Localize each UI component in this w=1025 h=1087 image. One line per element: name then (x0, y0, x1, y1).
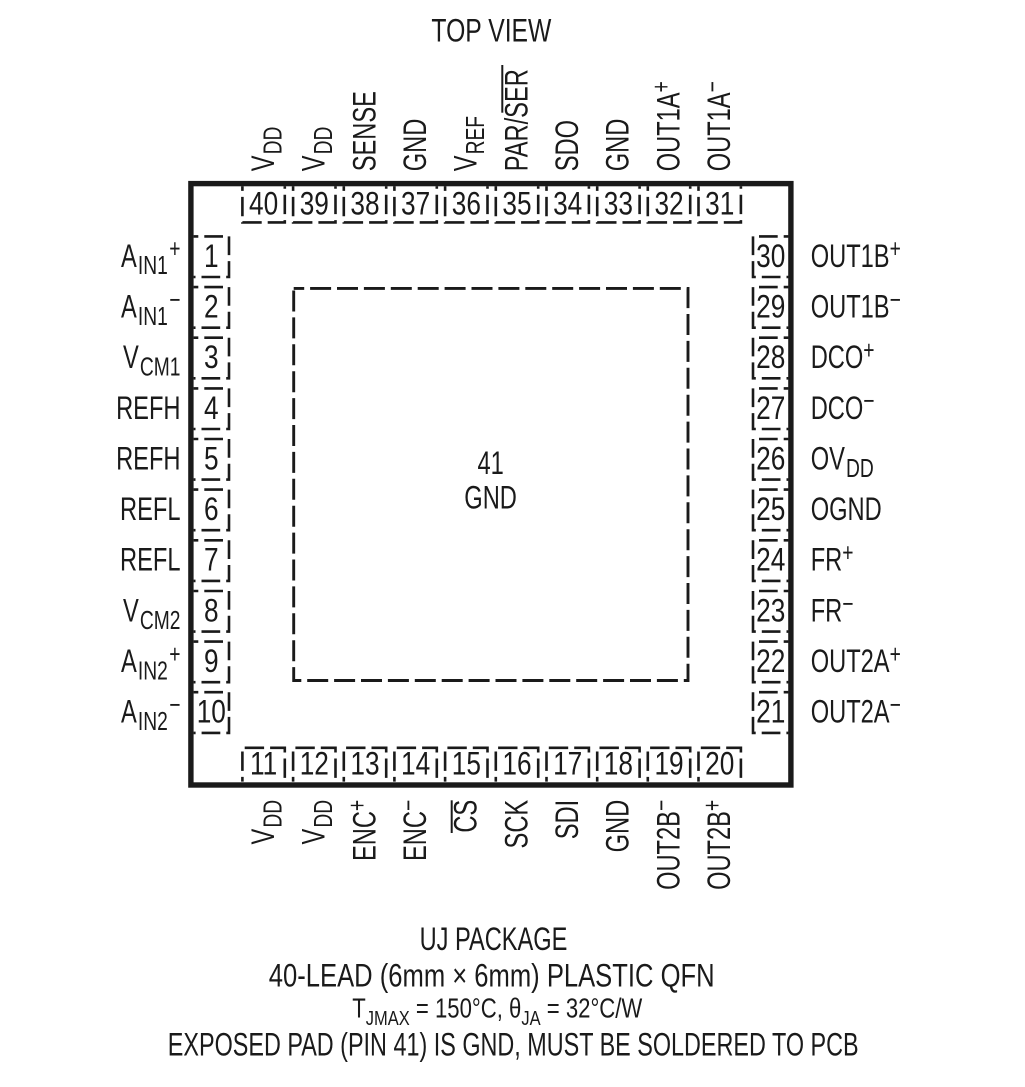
svg-text:29: 29 (756, 290, 785, 325)
svg-text:OUT1B+: OUT1B+ (811, 234, 901, 274)
svg-text:19: 19 (654, 747, 683, 782)
svg-text:38: 38 (350, 187, 379, 222)
svg-text:2: 2 (204, 290, 219, 325)
svg-text:21: 21 (756, 695, 785, 730)
svg-text:35: 35 (502, 187, 531, 222)
svg-text:30: 30 (756, 239, 785, 274)
svg-text:39: 39 (300, 187, 329, 222)
svg-text:REFH: REFH (116, 441, 180, 476)
svg-text:PAR/SER: PAR/SER (499, 69, 534, 171)
svg-text:28: 28 (756, 341, 785, 376)
svg-text:REFL: REFL (120, 542, 180, 577)
svg-text:13: 13 (350, 747, 379, 782)
svg-text:32: 32 (654, 187, 683, 222)
svg-text:GND: GND (398, 119, 433, 172)
svg-text:17: 17 (553, 747, 582, 782)
svg-text:CS: CS (448, 800, 483, 833)
svg-text:16: 16 (502, 747, 531, 782)
svg-text:1: 1 (204, 239, 219, 274)
svg-text:UJ PACKAGE: UJ PACKAGE (420, 921, 568, 956)
svg-text:20: 20 (705, 747, 734, 782)
svg-text:REFH: REFH (116, 390, 180, 425)
svg-text:25: 25 (756, 493, 785, 528)
svg-text:TOP VIEW: TOP VIEW (431, 13, 551, 49)
svg-text:31: 31 (705, 187, 734, 222)
svg-text:OUT1A+: OUT1A+ (646, 81, 686, 171)
svg-text:40: 40 (249, 187, 278, 222)
svg-text:5: 5 (204, 442, 219, 477)
svg-text:22: 22 (756, 645, 785, 680)
svg-text:24: 24 (756, 543, 785, 578)
svg-text:SCK: SCK (499, 800, 534, 849)
svg-text:9: 9 (204, 645, 219, 680)
svg-text:27: 27 (756, 391, 785, 426)
svg-text:SENSE: SENSE (347, 91, 382, 171)
svg-text:36: 36 (452, 187, 481, 222)
svg-text:11: 11 (250, 747, 277, 782)
svg-text:15: 15 (452, 747, 481, 782)
svg-text:OUT1B−: OUT1B− (811, 284, 901, 324)
svg-text:26: 26 (756, 442, 785, 477)
svg-text:33: 33 (604, 187, 633, 222)
svg-text:EXPOSED PAD (PIN 41) IS GND, M: EXPOSED PAD (PIN 41) IS GND, MUST BE SOL… (168, 1027, 859, 1062)
svg-text:18: 18 (604, 747, 633, 782)
svg-text:GND: GND (600, 119, 635, 172)
svg-text:37: 37 (401, 187, 430, 222)
svg-text:GND: GND (464, 480, 517, 515)
svg-text:SDI: SDI (550, 800, 585, 839)
svg-text:SDO: SDO (550, 120, 585, 171)
svg-text:23: 23 (756, 594, 785, 629)
svg-text:8: 8 (204, 594, 219, 629)
svg-text:GND: GND (600, 800, 635, 853)
svg-text:41: 41 (477, 446, 503, 481)
svg-text:OUT2A−: OUT2A− (811, 690, 901, 730)
svg-text:34: 34 (553, 187, 582, 222)
svg-text:OUT1A−: OUT1A− (697, 81, 737, 171)
svg-text:10: 10 (197, 695, 226, 730)
svg-text:12: 12 (300, 747, 329, 782)
svg-text:40-LEAD (6mm × 6mm) PLASTIC QF: 40-LEAD (6mm × 6mm) PLASTIC QFN (269, 959, 715, 994)
svg-text:4: 4 (204, 391, 219, 426)
svg-text:14: 14 (401, 747, 430, 782)
svg-text:REFL: REFL (120, 492, 180, 527)
svg-text:7: 7 (204, 543, 219, 578)
svg-text:OGND: OGND (811, 492, 882, 527)
svg-text:OUT2B−: OUT2B− (646, 800, 686, 890)
svg-text:OUT2A+: OUT2A+ (811, 639, 901, 679)
svg-text:OUT2B+: OUT2B+ (697, 800, 737, 890)
svg-text:6: 6 (204, 493, 219, 528)
svg-text:3: 3 (204, 341, 219, 376)
